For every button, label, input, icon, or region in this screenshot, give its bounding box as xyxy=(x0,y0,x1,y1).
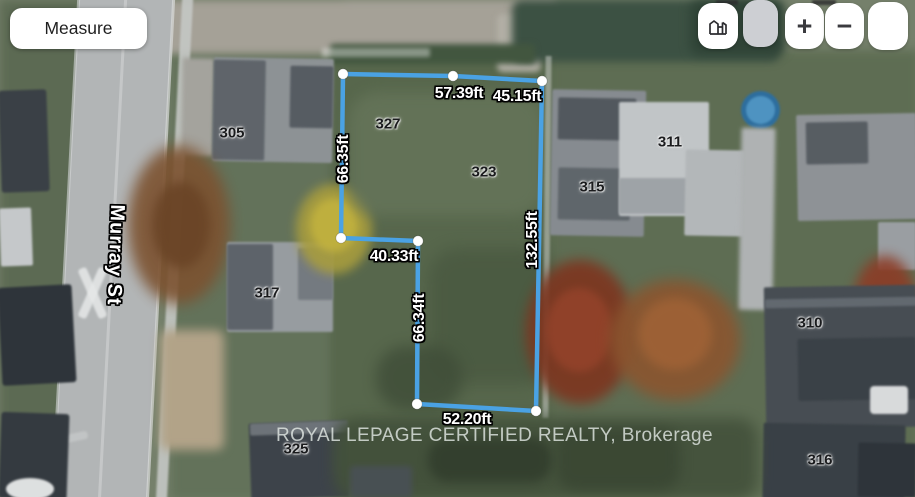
house-roof-left-2 xyxy=(0,207,33,266)
blank-control-button[interactable] xyxy=(868,2,908,50)
lot-grass-light xyxy=(348,92,544,216)
map-terrain xyxy=(0,0,915,497)
driveway-right xyxy=(738,128,775,311)
measure-button[interactable]: Measure xyxy=(10,8,147,49)
faint-ground-text xyxy=(322,48,430,57)
minus-icon: − xyxy=(837,13,853,40)
buildings-3d-button[interactable] xyxy=(698,3,738,49)
structure-bottom-lot xyxy=(350,466,412,497)
house-roof-left-1 xyxy=(0,89,50,193)
garage-roof-311 xyxy=(684,149,745,236)
house-roof-topright-gable xyxy=(806,121,869,164)
buildings-3d-icon xyxy=(706,14,730,38)
trampoline xyxy=(6,478,54,497)
house-roof-317-gable xyxy=(227,244,273,330)
tree-autumn-road-core xyxy=(152,182,210,268)
house-roof-316-gable xyxy=(858,442,915,497)
dirt-patch xyxy=(160,330,224,450)
inactive-control-button[interactable] xyxy=(743,0,778,47)
pool-water xyxy=(746,96,775,124)
zoom-out-button[interactable]: − xyxy=(825,3,864,49)
zoom-in-button[interactable]: + xyxy=(785,3,824,49)
driveway-305 xyxy=(181,58,215,157)
lot-grass-dark xyxy=(376,346,462,410)
brokerage-watermark: ROYAL LEPAGE CERTIFIED REALTY, Brokerage xyxy=(276,425,713,447)
house-roof-305-gable xyxy=(212,60,266,161)
tree-red-big-core xyxy=(546,288,612,372)
tree-yellow-core xyxy=(310,198,358,252)
tree-orange-core xyxy=(638,298,712,370)
plus-icon: + xyxy=(797,13,813,40)
car xyxy=(870,386,908,414)
street-label: Murray St xyxy=(102,204,129,306)
house-roof-left-3 xyxy=(0,284,77,386)
satellite-map[interactable]: 57.39ft45.15ft66.35ft40.33ft66.34ft132.5… xyxy=(0,0,915,497)
house-roof-305-gable xyxy=(289,66,333,129)
